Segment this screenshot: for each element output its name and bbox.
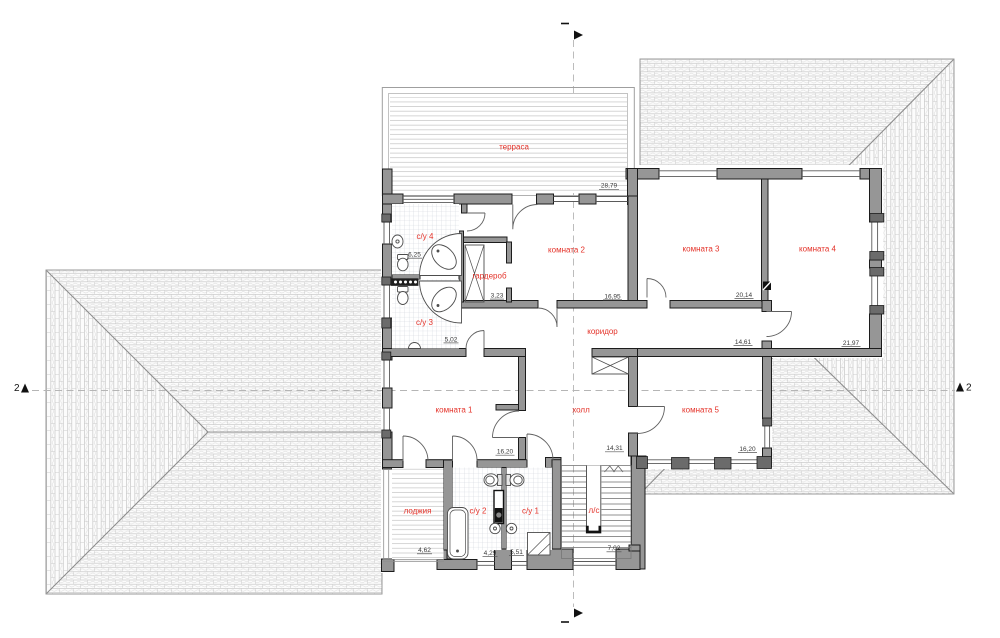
svg-text:2: 2 xyxy=(14,383,20,394)
svg-text:4,62: 4,62 xyxy=(418,547,431,554)
svg-text:л/с: л/с xyxy=(589,506,600,515)
svg-text:комната 5: комната 5 xyxy=(682,406,719,415)
svg-text:с/у 3: с/у 3 xyxy=(416,318,433,327)
svg-text:терраса: терраса xyxy=(499,143,529,152)
svg-text:14,61: 14,61 xyxy=(735,339,752,346)
svg-text:2: 2 xyxy=(966,383,972,394)
svg-text:7,02: 7,02 xyxy=(608,545,621,552)
svg-text:с/у 4: с/у 4 xyxy=(417,232,434,241)
svg-text:4,29: 4,29 xyxy=(484,550,497,557)
svg-text:21,97: 21,97 xyxy=(843,340,860,347)
svg-text:комната 3: комната 3 xyxy=(683,244,720,253)
svg-text:гардероб: гардероб xyxy=(472,271,506,280)
svg-text:6,25: 6,25 xyxy=(408,252,421,259)
svg-text:лоджия: лоджия xyxy=(404,507,432,516)
svg-text:5,02: 5,02 xyxy=(445,336,458,343)
svg-text:с/у 1: с/у 1 xyxy=(522,507,539,516)
svg-text:28,79: 28,79 xyxy=(601,183,618,190)
svg-text:14,31: 14,31 xyxy=(606,445,623,452)
svg-text:комната 2: комната 2 xyxy=(548,245,585,254)
svg-text:16,20: 16,20 xyxy=(497,449,514,456)
svg-text:5,51: 5,51 xyxy=(510,549,523,556)
svg-text:комната 1: комната 1 xyxy=(436,406,473,415)
svg-text:3,23: 3,23 xyxy=(491,293,504,300)
svg-text:20,14: 20,14 xyxy=(736,292,753,299)
svg-text:комната 4: комната 4 xyxy=(799,244,836,253)
svg-text:коридор: коридор xyxy=(587,327,618,336)
svg-text:16,20: 16,20 xyxy=(739,446,756,453)
svg-text:с/у 2: с/у 2 xyxy=(470,507,487,516)
svg-text:холл: холл xyxy=(572,406,590,415)
svg-text:16,95: 16,95 xyxy=(604,293,621,300)
